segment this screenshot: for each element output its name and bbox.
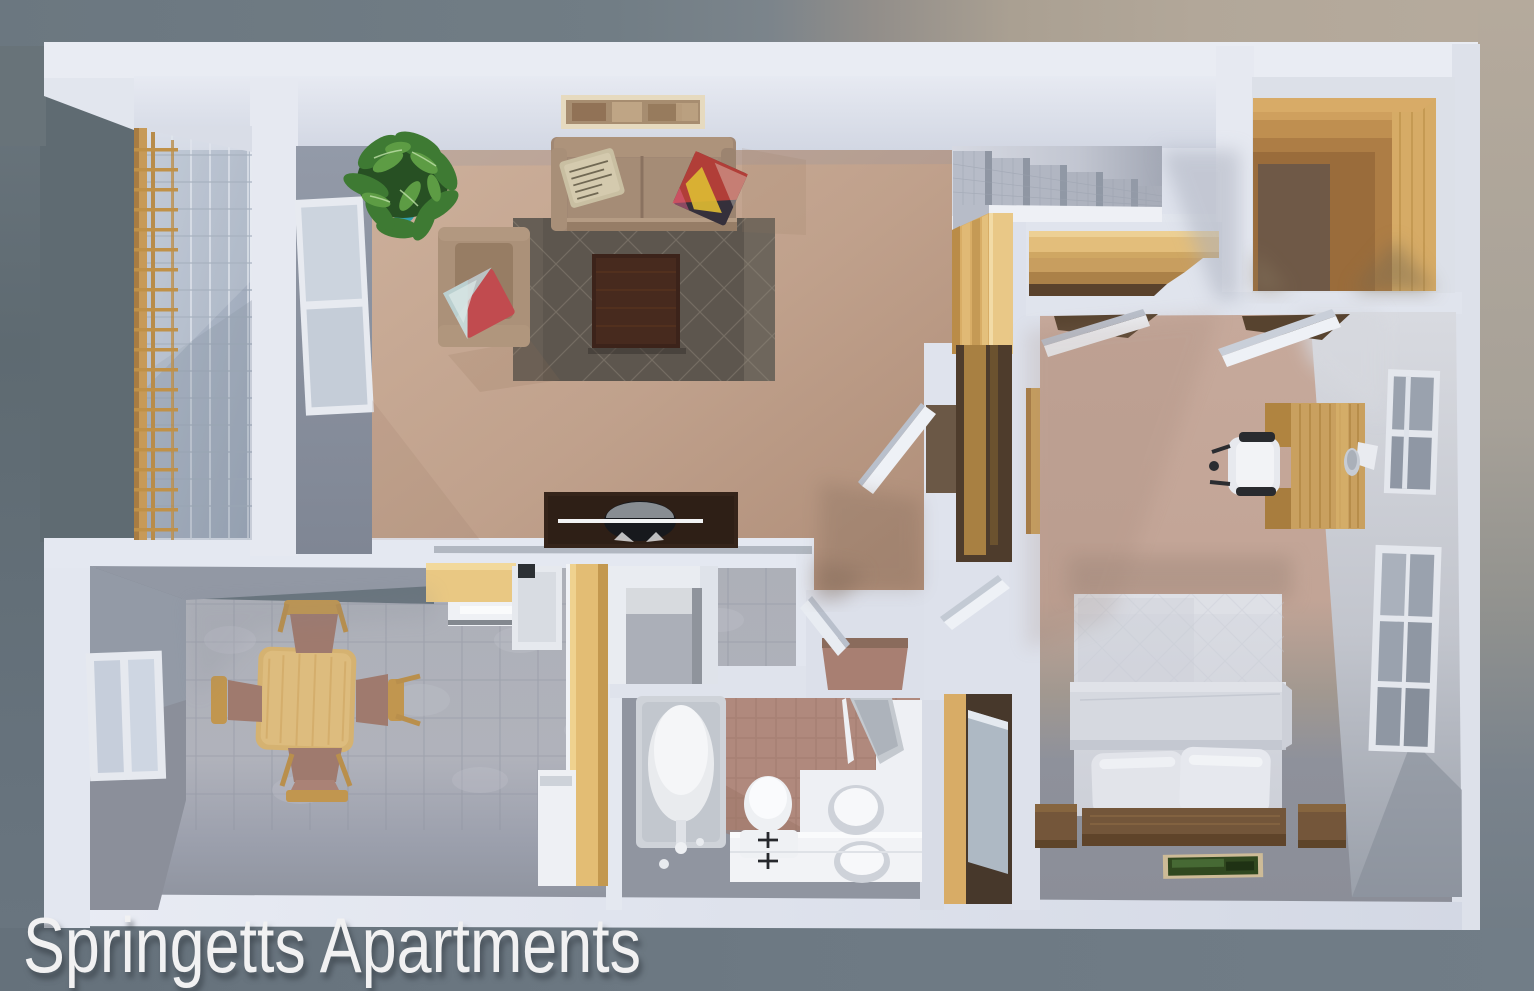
svg-text:Springetts Apartments: Springetts Apartments bbox=[23, 901, 641, 989]
